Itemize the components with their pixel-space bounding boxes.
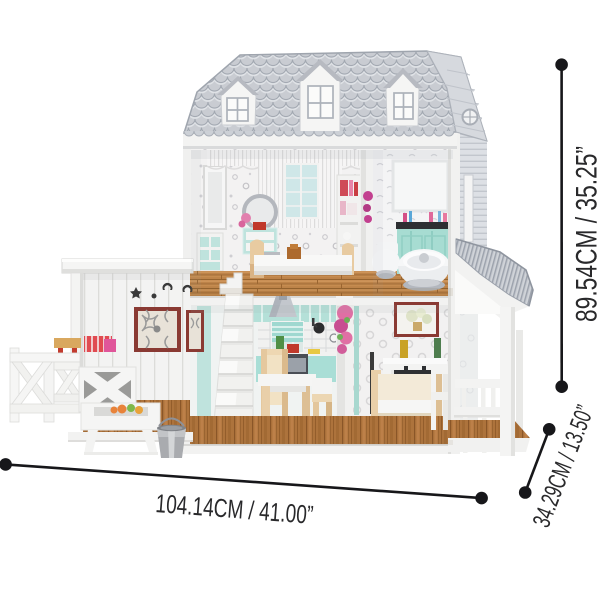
svg-text:89.54CM / 35.25”: 89.54CM / 35.25” bbox=[571, 146, 600, 322]
